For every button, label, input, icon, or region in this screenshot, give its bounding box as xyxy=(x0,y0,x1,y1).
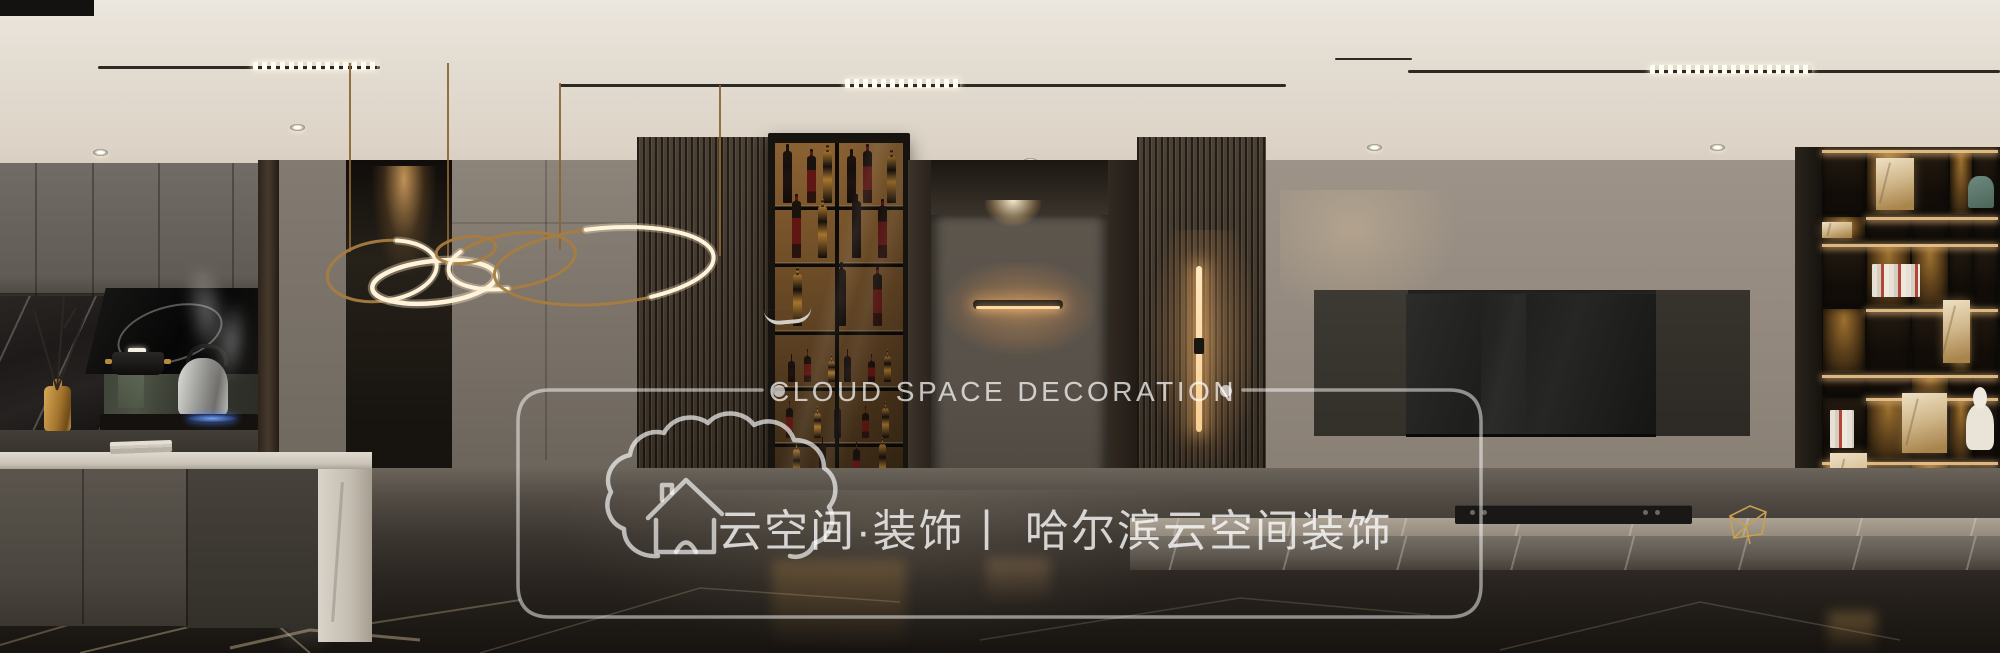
watermark-brand-cn: 云空间·装饰丨 哈尔滨云空间装饰 xyxy=(718,507,1393,556)
interior-rendering: CLOUD SPACE DECORATION 云空间·装饰丨 哈尔滨云空间装饰 xyxy=(0,0,2000,653)
watermark: CLOUD SPACE DECORATION 云空间·装饰丨 哈尔滨云空间装饰 xyxy=(0,0,2000,653)
watermark-brand-en: CLOUD SPACE DECORATION xyxy=(769,376,1237,407)
